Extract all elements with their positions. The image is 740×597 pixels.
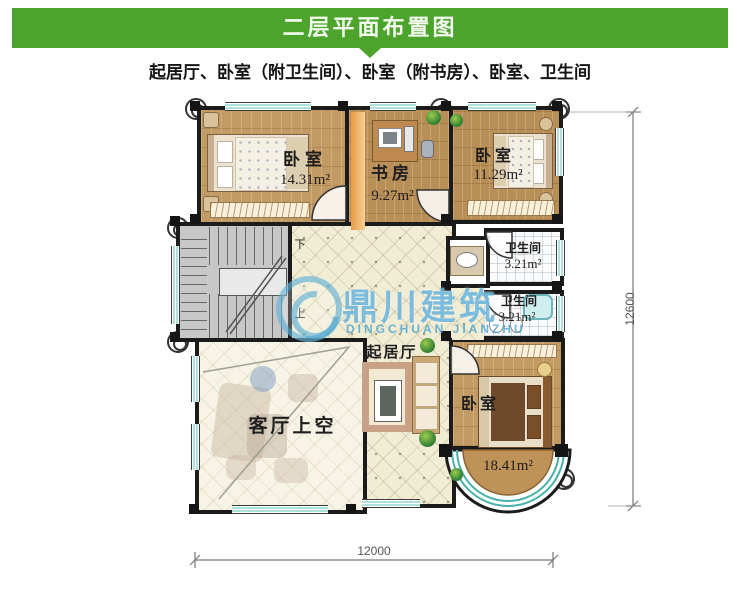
corridor <box>452 288 484 340</box>
washbasin <box>456 252 478 268</box>
column <box>439 444 452 457</box>
column <box>552 281 562 291</box>
column <box>170 332 180 342</box>
plant-icon <box>426 110 441 125</box>
column <box>555 444 568 457</box>
stair-down-label: 下 <box>292 239 308 252</box>
room-label-bedroom-br: 卧室 <box>450 396 510 414</box>
room-area-bedroom-tr: 11.29m² <box>448 167 548 184</box>
stair-flight-lower <box>209 294 289 338</box>
ghost-stool <box>250 366 276 392</box>
corner-column-ring <box>553 468 575 490</box>
stair-flight-upper <box>209 227 289 265</box>
room-label-living-hall: 起居厅 <box>352 345 432 362</box>
dimension-right: 12600 <box>623 279 637 339</box>
room-area-study: 9.27m² <box>355 188 430 205</box>
nightstand <box>203 112 219 128</box>
column <box>190 214 200 224</box>
ghost-chair <box>226 455 256 480</box>
column <box>552 101 562 111</box>
plan-summary-text: 起居厅、卧室（附卫生间）、卧室（附书房）、卧室、卫生间 <box>0 58 740 83</box>
column <box>441 281 451 291</box>
window <box>468 102 536 111</box>
plant-icon <box>450 114 463 127</box>
window <box>362 499 420 508</box>
floorplan-page: 二层平面布置图 起居厅、卧室（附卫生间）、卧室（附书房）、卧室、卫生间 <box>0 0 740 597</box>
banner-pointer-triangle <box>359 48 381 58</box>
stair-landing <box>219 268 287 296</box>
dimension-bottom: 12000 <box>339 544 409 558</box>
column <box>170 216 180 226</box>
column <box>189 504 199 514</box>
column <box>441 101 451 111</box>
column <box>346 504 356 514</box>
wardrobe <box>467 200 555 216</box>
stair-up-label: 上 <box>292 308 308 321</box>
stair-flight-left <box>181 238 207 330</box>
wardrobe <box>467 344 557 358</box>
ghost-armchair <box>288 374 318 402</box>
column <box>190 101 200 111</box>
column <box>338 101 348 111</box>
column <box>552 214 562 224</box>
window <box>191 424 200 470</box>
column <box>441 214 451 224</box>
room-label-bedroom-tr: 卧室 <box>455 148 535 166</box>
sofa <box>412 356 440 434</box>
room-area-bedroom-tl: 14.31m² <box>250 172 360 189</box>
room-area-bath-upper: 3.21m² <box>488 257 558 272</box>
page-title-banner: 二层平面布置图 <box>12 8 728 48</box>
tv-cabinet <box>374 380 402 422</box>
computer-monitor <box>378 128 402 148</box>
window <box>225 102 311 111</box>
room-label-void: 客厅上空 <box>235 416 350 438</box>
room-area-bedroom-br: 18.41m² <box>468 458 548 475</box>
column <box>552 331 562 341</box>
window <box>370 102 416 111</box>
plant-icon <box>450 468 463 481</box>
room-label-bedroom-tl: 卧室 <box>255 150 355 170</box>
nightstand <box>539 117 553 131</box>
room-label-bath-lower: 卫生间 <box>484 295 554 309</box>
ghost-chair <box>274 458 308 483</box>
window <box>171 246 180 324</box>
bedside-lamp <box>537 362 552 377</box>
window <box>555 128 564 176</box>
plant-icon <box>419 430 436 447</box>
chair <box>421 140 434 158</box>
pc-tower <box>404 126 414 152</box>
room-area-bath-lower: 3.21m² <box>482 310 552 325</box>
room-label-bath-upper: 卫生间 <box>488 242 558 256</box>
window <box>232 505 328 514</box>
column <box>441 331 451 341</box>
wardrobe <box>210 202 310 218</box>
window <box>556 296 565 332</box>
window <box>191 356 200 402</box>
room-label-study: 书房 <box>362 164 422 184</box>
